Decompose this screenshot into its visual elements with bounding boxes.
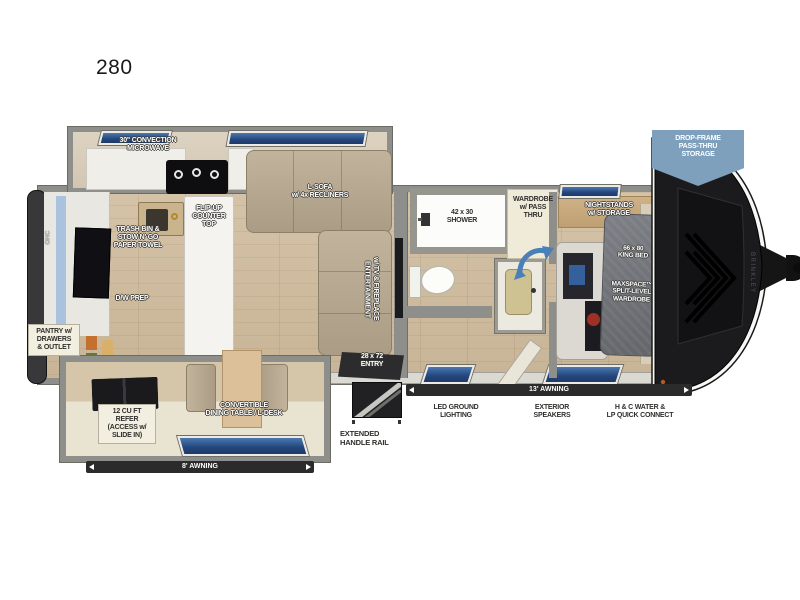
dining-label: CONVERTIBLE DINING TABLE / L-DESK xyxy=(186,402,302,418)
sofa-label: L-SOFA w/ 4x RECLINERS xyxy=(262,184,378,200)
trash-label: TRASH BIN & STOW N' GO PAPER TOWEL xyxy=(90,226,186,249)
arrow-right-icon xyxy=(684,387,689,393)
awning-13: 13' AWNING xyxy=(406,384,692,396)
burner-icon xyxy=(210,170,219,179)
faucet-icon xyxy=(171,213,178,220)
awning-8-label: 8' AWNING xyxy=(182,463,218,470)
rail-tick xyxy=(398,420,401,424)
window xyxy=(177,436,309,456)
awning-13-label: 13' AWNING xyxy=(529,386,569,393)
burner-icon xyxy=(192,168,201,177)
arrow-left-icon xyxy=(89,464,94,470)
handle-rail-label: EXTENDED HANDLE RAIL xyxy=(340,430,416,447)
pass-thru-arrow-icon xyxy=(510,236,558,284)
ohc-label: OHC xyxy=(44,220,51,256)
shower-pipe-icon xyxy=(418,218,422,221)
pantry-accent xyxy=(56,196,66,334)
speakers-label: EXTERIOR SPEAKERS xyxy=(514,404,590,420)
arrow-left-icon xyxy=(409,387,414,393)
entry-step xyxy=(352,382,402,418)
arrow-right-icon xyxy=(306,464,311,470)
page-title: 280 xyxy=(96,56,133,80)
led-lighting-label: LED GROUND LIGHTING xyxy=(414,404,498,420)
fireplace-tv-panel xyxy=(395,238,403,318)
refer-label: 12 CU FT REFER (ACCESS w/ SLIDE IN) xyxy=(98,404,156,444)
brand-name: BRINKLEY xyxy=(749,252,755,294)
pantry-label: PANTRY w/ DRAWERS & OUTLET xyxy=(28,324,80,356)
floorplan-canvas: 280 xyxy=(0,0,800,600)
storage-badge-label: DROP-FRAME PASS-THRU STORAGE xyxy=(652,135,744,158)
bath-wall xyxy=(406,306,492,318)
burner-icon xyxy=(174,170,183,179)
toilet-tank xyxy=(409,266,421,298)
window xyxy=(227,131,368,146)
rail-tick xyxy=(352,420,355,424)
nightstands-label: NIGHTSTANDS w/ STORAGE xyxy=(556,202,662,218)
shower-label: 42 x 30 SHOWER xyxy=(426,209,498,225)
faucet-icon xyxy=(531,288,536,293)
window xyxy=(559,185,620,198)
entertainment-label: ENTERTAINMENT w/ TV & FIREPLACE xyxy=(362,222,392,356)
wardrobe-label: WARDROBE w/ PASS THRU xyxy=(508,196,558,220)
awning-8: 8' AWNING xyxy=(86,461,314,473)
cooktop xyxy=(166,160,228,194)
grab-rail xyxy=(354,382,402,418)
window xyxy=(421,365,475,384)
dw-prep-label: D/W PREP xyxy=(94,295,170,303)
decor-blue xyxy=(569,265,585,285)
flip-counter-label: FLIP-UP COUNTER TOP xyxy=(182,205,236,228)
hitch xyxy=(758,244,788,292)
decor-red xyxy=(587,313,600,326)
water-connect-label: H & C WATER & LP QUICK CONNECT xyxy=(588,404,692,420)
microwave-label: 30" CONVECTION MICROWAVE xyxy=(86,137,210,153)
pantry-item xyxy=(86,336,97,350)
